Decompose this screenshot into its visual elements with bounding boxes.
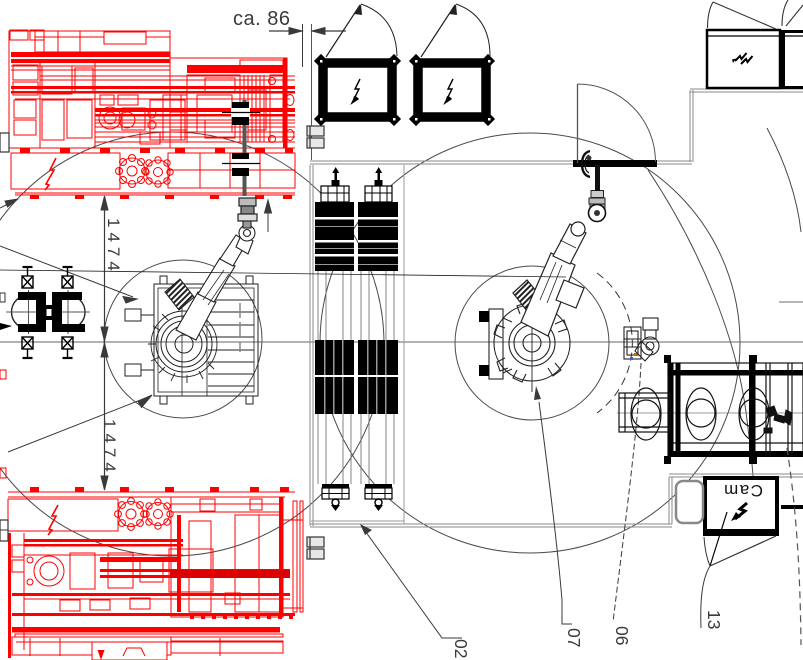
svg-text:1474: 1474 [104,218,123,276]
svg-text:02: 02 [451,639,471,658]
svg-text:Cam: Cam [723,481,763,500]
svg-text:07: 07 [564,628,584,647]
svg-text:06: 06 [612,626,632,645]
svg-text:1474: 1474 [100,419,119,477]
svg-text:13: 13 [704,610,724,629]
svg-text:ca. 86: ca. 86 [233,8,290,30]
